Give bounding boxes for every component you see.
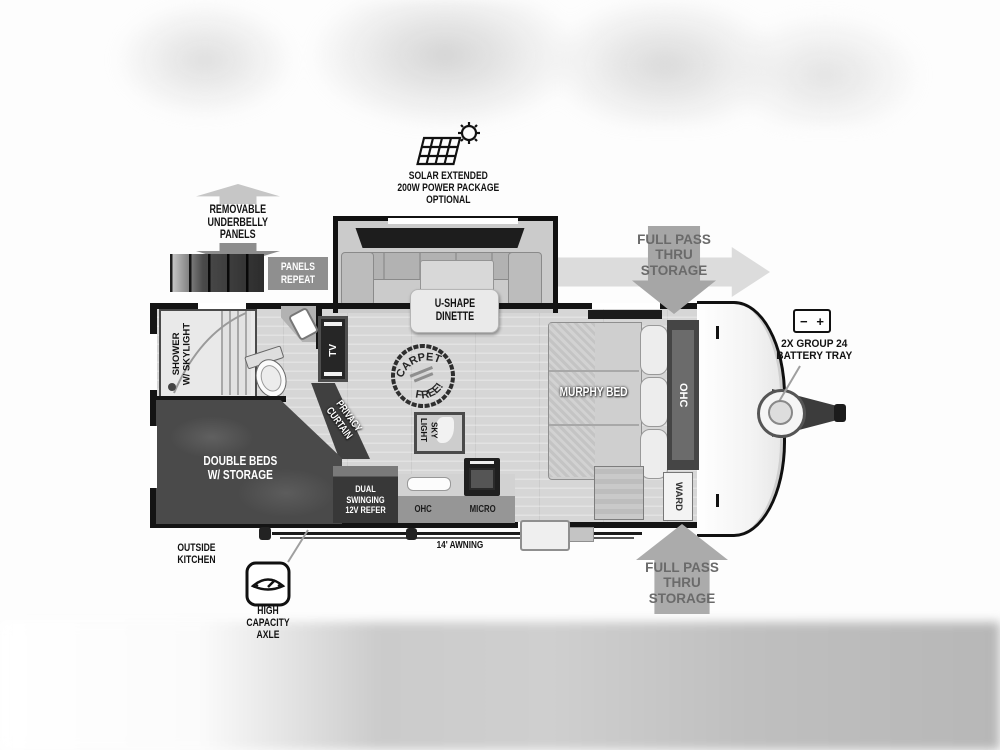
skylight-label: SKY LIGHT [418, 418, 439, 442]
battery-minus: − [800, 314, 808, 329]
battery-plus: + [816, 314, 824, 329]
propane-tank-inner [768, 400, 793, 425]
dinette-label: U-SHAPE DINETTE [434, 298, 474, 323]
leader-lines [0, 0, 1000, 750]
dinette-label-box: U-SHAPE DINETTE [410, 289, 499, 333]
battery-label: 2X GROUP 24 BATTERY TRAY [776, 338, 852, 362]
pass-thru-top-label: FULL PASS THRU STORAGE [637, 232, 711, 277]
floorplan-image: SOLAR EXTENDED 200W POWER PACKAGE OPTION… [0, 0, 1000, 750]
pass-thru-bottom-label: FULL PASS THRU STORAGE [645, 560, 719, 605]
stove-burners [469, 468, 495, 490]
battery-icon: − + [793, 309, 831, 333]
stove-handle [470, 461, 494, 464]
